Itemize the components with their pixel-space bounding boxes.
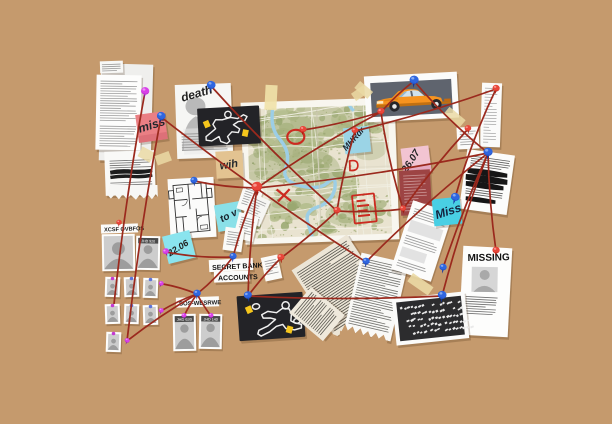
svg-text:MISSING: MISSING — [467, 252, 510, 264]
svg-text:JHD 920: JHD 920 — [141, 239, 155, 243]
svg-text:ACCOUNTS: ACCOUNTS — [218, 274, 258, 282]
